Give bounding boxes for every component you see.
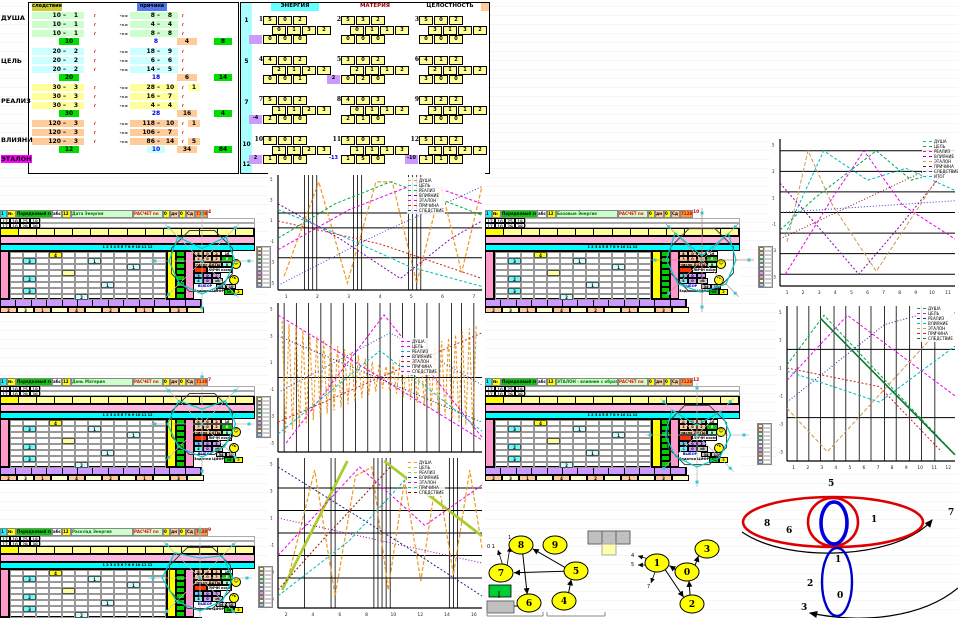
purple-band-cell[interactable] <box>609 300 624 306</box>
grid-cell[interactable] <box>534 294 547 300</box>
cause-effect-table[interactable]: следствиепричина10 –1г-==8 –8г10 –1г-==4… <box>28 2 239 174</box>
yellow-band-cell[interactable] <box>55 229 73 235</box>
yellow-band-cell[interactable] <box>128 547 146 553</box>
matrix-cell[interactable]: 2 <box>473 146 487 155</box>
matrix-cell[interactable]: 0 <box>434 35 448 44</box>
matrix-cell[interactable]: 2 <box>449 56 463 65</box>
grid-cell[interactable] <box>547 462 560 468</box>
purple-band-cell[interactable] <box>63 468 78 474</box>
matrix-cell[interactable]: 1 <box>287 66 301 75</box>
matrix-cell[interactable]: 2 <box>473 106 487 115</box>
matrix-cell[interactable]: 2 <box>302 146 316 155</box>
cause-row[interactable]: 30 –3г-==28 –10г1 <box>29 83 238 92</box>
yellow-band-cell[interactable] <box>91 547 109 553</box>
grid-cell-filled[interactable]: 1 <box>127 582 140 588</box>
grid-cell-filled[interactable]: 3 <box>508 258 521 264</box>
purple-band-cell[interactable] <box>1 300 16 306</box>
bottom-cell[interactable] <box>536 475 553 481</box>
grid-cell[interactable] <box>88 294 101 300</box>
bottom-cell[interactable]: 4 <box>553 475 570 481</box>
cause-subtotal-row[interactable]: 12103484 <box>29 146 238 155</box>
purple-band-cell[interactable] <box>63 300 78 306</box>
purple-band-cell[interactable] <box>486 300 501 306</box>
grid-cell[interactable] <box>625 462 638 468</box>
purple-band-cell[interactable] <box>109 468 124 474</box>
matrix-cell[interactable]: 0 <box>278 96 292 105</box>
yellow-band-cell[interactable] <box>73 397 91 403</box>
yellow-band-cell[interactable] <box>594 397 612 403</box>
matrix-cell[interactable]: 0 <box>278 115 292 124</box>
num-cell[interactable]: 17 <box>485 223 495 228</box>
bottom-cell[interactable]: 2 <box>102 307 119 313</box>
matrix-cell[interactable]: 0 <box>278 35 292 44</box>
grid-cell-filled[interactable]: 1 <box>88 576 101 582</box>
grid-cell-filled[interactable]: 1 <box>573 426 586 432</box>
block-grid[interactable]: 43112132 <box>494 251 652 299</box>
matrix-cell[interactable]: 0 <box>449 35 463 44</box>
yellow-band-cell[interactable] <box>91 229 109 235</box>
matrix-cell[interactable]: 4 <box>419 56 433 65</box>
yellow-band-cell[interactable] <box>540 397 558 403</box>
yellow-band-cell[interactable] <box>19 229 37 235</box>
cause-row[interactable]: 120 –3г-==106 –7г <box>29 128 238 137</box>
matrix-cell[interactable]: 1 <box>419 155 433 164</box>
purple-band-cell[interactable] <box>532 300 547 306</box>
cause-subtotal-row[interactable]: 10848 <box>29 38 238 47</box>
grid-cell[interactable] <box>36 462 49 468</box>
grid-cell-filled[interactable]: 2 <box>75 294 88 300</box>
matrix-cell[interactable]: 3 <box>419 75 433 84</box>
grid-cell[interactable] <box>49 294 62 300</box>
matrix-cell[interactable]: 5 <box>356 155 370 164</box>
cause-row[interactable]: 120 –3г-==118 –10г1 <box>29 119 238 128</box>
purple-band-cell[interactable] <box>625 468 640 474</box>
yellow-band-cell[interactable] <box>486 397 504 403</box>
yellow-band-cell[interactable] <box>91 397 109 403</box>
grid-cell-filled[interactable]: 2 <box>23 594 36 600</box>
matrix-cell[interactable]: 1 <box>272 146 286 155</box>
matrix-cell[interactable]: 3 <box>395 146 409 155</box>
grid-cell-filled[interactable]: 3 <box>23 576 36 582</box>
num-cell[interactable]: 38 <box>30 223 40 228</box>
matrix-cell[interactable]: 0 <box>278 75 292 84</box>
matrix-cell[interactable]: 1 <box>365 66 379 75</box>
grid-cell[interactable] <box>101 294 114 300</box>
matrix-cell[interactable]: 0 <box>449 75 463 84</box>
bottom-cell[interactable]: 2 <box>102 475 119 481</box>
grid-cell[interactable] <box>599 294 612 300</box>
grid-cell[interactable] <box>10 294 23 300</box>
grid-cell[interactable] <box>101 612 114 618</box>
grid-cell-filled[interactable] <box>547 270 560 276</box>
matrix-cell[interactable]: 1 <box>443 146 457 155</box>
bottom-cell[interactable]: 4 <box>68 475 85 481</box>
matrix-cell[interactable]: 1 <box>434 136 448 145</box>
yellow-band-cell[interactable] <box>576 229 594 235</box>
matrix-cell[interactable]: 0 <box>371 155 385 164</box>
grid-cell[interactable] <box>88 462 101 468</box>
matrix-cell[interactable]: 0 <box>278 155 292 164</box>
block-grid[interactable]: 43112132 <box>9 251 167 299</box>
matrix-cell[interactable]: 2 <box>473 26 487 35</box>
block-grid[interactable]: 43112132 <box>494 419 652 467</box>
matrix-pre-cell[interactable]: -13 <box>327 155 340 164</box>
bottom-cell[interactable] <box>119 307 136 313</box>
purple-band-cell[interactable] <box>532 468 547 474</box>
matrix-cell[interactable]: 0 <box>350 106 364 115</box>
matrix-cell[interactable]: 3 <box>317 146 331 155</box>
matrix-cell[interactable]: 0 <box>356 56 370 65</box>
matrix-pre-cell[interactable]: -10 <box>405 155 418 164</box>
purple-band-cell[interactable] <box>78 300 93 306</box>
matrix-cell[interactable]: 1 <box>458 66 472 75</box>
matrix-pre-cell[interactable]: 2 <box>327 75 340 84</box>
cause-row[interactable]: 20 –2г-==6 –6г <box>29 56 238 65</box>
matrix-cell[interactable]: 2 <box>371 16 385 25</box>
grid-cell[interactable] <box>114 462 127 468</box>
yellow-band-cell[interactable] <box>37 397 55 403</box>
purple-band-cell[interactable] <box>501 468 516 474</box>
bottom-cell[interactable]: 1 <box>34 475 51 481</box>
matrix-cell[interactable]: 1 <box>341 155 355 164</box>
yellow-band-cell[interactable] <box>613 397 631 403</box>
purple-band-cell[interactable] <box>16 468 31 474</box>
purple-band-cell[interactable] <box>124 300 139 306</box>
matrix-cell[interactable]: 0 <box>434 115 448 124</box>
yellow-band-cell[interactable] <box>73 547 91 553</box>
matrix-cell[interactable]: 2 <box>371 56 385 65</box>
matrix-cell[interactable]: 0 <box>278 56 292 65</box>
grid-cell[interactable] <box>23 462 36 468</box>
bottom-cell[interactable]: 3 <box>17 475 34 481</box>
num-cell[interactable]: 38 <box>515 223 525 228</box>
purple-band-cell[interactable] <box>563 468 578 474</box>
purple-band-cell[interactable] <box>47 468 62 474</box>
grid-cell[interactable] <box>521 462 534 468</box>
matrix-cell[interactable]: 1 <box>356 115 370 124</box>
cause-row[interactable]: 120 –3г-==86 –14г5 <box>29 137 238 146</box>
matrix-cell[interactable]: 5 <box>341 136 355 145</box>
grid-cell[interactable] <box>62 294 75 300</box>
bottom-cell[interactable]: 2 <box>587 307 604 313</box>
matrix-cell[interactable]: 1 <box>287 26 301 35</box>
matrix-cell[interactable]: 2 <box>350 66 364 75</box>
num-cell[interactable]: 38 <box>515 391 525 396</box>
purple-band-cell[interactable] <box>517 468 532 474</box>
matrix-cell[interactable]: 1 <box>443 106 457 115</box>
purple-band-cell[interactable] <box>578 468 593 474</box>
grid-cell[interactable] <box>508 294 521 300</box>
purple-band-cell[interactable] <box>578 300 593 306</box>
grid-cell-filled[interactable]: 1 <box>612 432 625 438</box>
grid-cell-filled[interactable] <box>547 438 560 444</box>
grid-cell[interactable] <box>612 294 625 300</box>
matrix-cell[interactable]: 1 <box>443 66 457 75</box>
num-cell[interactable]: 10 <box>10 391 20 396</box>
grid-cell-filled[interactable] <box>62 588 75 594</box>
matrix-cell[interactable]: 3 <box>458 26 472 35</box>
yellow-band-cell[interactable] <box>1 229 19 235</box>
matrix-cell[interactable]: 1 <box>365 26 379 35</box>
num-cell[interactable]: 29 <box>20 391 30 396</box>
grid-cell-filled[interactable]: 1 <box>586 450 599 456</box>
bottom-cell[interactable]: 1 <box>519 307 536 313</box>
purple-band-cell[interactable] <box>501 300 516 306</box>
bottom-cell[interactable]: 2 <box>485 307 502 313</box>
grid-cell-filled[interactable]: 1 <box>573 258 586 264</box>
matrix-cell[interactable]: 2 <box>317 26 331 35</box>
bottom-cell[interactable] <box>570 475 587 481</box>
matrix-cell[interactable]: 1 <box>434 155 448 164</box>
matrix-cell[interactable]: 2 <box>356 75 370 84</box>
matrix-cell[interactable]: 0 <box>449 115 463 124</box>
grid-cell-filled[interactable]: 2 <box>75 462 88 468</box>
bottom-cell[interactable]: 3 <box>502 475 519 481</box>
energy-matter-matrix-table[interactable]: 1571012ЭНЕРГИЯМАТЕРИЯЦЕЛОСТНОСТЬ15020132… <box>240 2 490 174</box>
matrix-cell[interactable]: 3 <box>356 16 370 25</box>
matrix-cell[interactable]: 0 <box>293 155 307 164</box>
matrix-cell[interactable]: 0 <box>356 136 370 145</box>
grid-cell-filled[interactable]: 2 <box>23 276 36 282</box>
grid-cell-filled[interactable]: 1 <box>101 450 114 456</box>
matrix-cell[interactable]: 1 <box>287 106 301 115</box>
matrix-cell[interactable]: 2 <box>428 66 442 75</box>
matrix-cell[interactable]: 0 <box>419 35 433 44</box>
yellow-band-cell[interactable] <box>504 229 522 235</box>
grid-cell[interactable] <box>127 294 140 300</box>
grid-cell-filled[interactable]: 3 <box>23 288 36 294</box>
bottom-cell[interactable]: 3 <box>17 307 34 313</box>
bottom-cell[interactable]: 3 <box>502 307 519 313</box>
yellow-band-cell[interactable] <box>631 229 649 235</box>
matrix-cell[interactable]: 1 <box>287 146 301 155</box>
matrix-cell[interactable]: 5 <box>263 16 277 25</box>
matrix-cell[interactable]: 1 <box>365 146 379 155</box>
bottom-cell[interactable] <box>119 475 136 481</box>
bottom-cell[interactable] <box>51 307 68 313</box>
purple-band-cell[interactable] <box>93 300 108 306</box>
purple-band-cell[interactable] <box>594 300 609 306</box>
num-cell[interactable]: 17 <box>485 391 495 396</box>
num-cell[interactable]: 17 <box>0 391 10 396</box>
grid-cell[interactable] <box>10 612 23 618</box>
num-cell[interactable]: 38 <box>30 541 40 546</box>
grid-cell-filled[interactable]: 2 <box>560 294 573 300</box>
yellow-band-cell[interactable] <box>128 229 146 235</box>
grid-cell[interactable] <box>36 612 49 618</box>
matrix-cell[interactable]: 1 <box>272 106 286 115</box>
bottom-cell[interactable]: 1 <box>621 475 638 481</box>
grid-cell-filled[interactable]: 3 <box>508 456 521 462</box>
purple-band-cell[interactable] <box>16 300 31 306</box>
matrix-cell[interactable]: 3 <box>371 136 385 145</box>
grid-cell-filled[interactable]: 2 <box>23 444 36 450</box>
matrix-cell[interactable]: 3 <box>395 26 409 35</box>
bottom-cell[interactable]: 4 <box>553 307 570 313</box>
num-cell[interactable]: 17 <box>0 223 10 228</box>
grid-cell[interactable] <box>495 462 508 468</box>
matrix-cell[interactable]: 2 <box>293 96 307 105</box>
matrix-cell[interactable]: 2 <box>449 136 463 145</box>
matrix-cell[interactable]: 1 <box>428 146 442 155</box>
matrix-cell[interactable]: 3 <box>419 96 433 105</box>
matrix-cell[interactable]: 2 <box>263 115 277 124</box>
grid-cell[interactable] <box>127 612 140 618</box>
purple-band-cell[interactable] <box>594 468 609 474</box>
grid-cell-filled[interactable]: 2 <box>75 612 88 618</box>
grid-cell[interactable] <box>625 294 638 300</box>
matrix-cell[interactable]: 3 <box>341 56 355 65</box>
grid-cell-filled[interactable]: 3 <box>508 288 521 294</box>
block-grid[interactable]: 43112132 <box>9 419 167 467</box>
grid-cell[interactable] <box>36 294 49 300</box>
purple-band-cell[interactable] <box>517 300 532 306</box>
grid-cell[interactable] <box>88 612 101 618</box>
num-cell[interactable]: 38 <box>30 391 40 396</box>
bottom-cell[interactable] <box>604 307 621 313</box>
matrix-cell[interactable]: 0 <box>293 115 307 124</box>
matrix-cell[interactable]: 2 <box>272 66 286 75</box>
yellow-band-cell[interactable] <box>55 397 73 403</box>
bottom-cell[interactable]: 1 <box>621 307 638 313</box>
bottom-cell[interactable] <box>85 475 102 481</box>
grid-cell-filled[interactable]: 1 <box>127 264 140 270</box>
bottom-cell[interactable] <box>85 307 102 313</box>
matrix-cell[interactable]: 1 <box>380 106 394 115</box>
matrix-cell[interactable]: 3 <box>371 96 385 105</box>
yellow-band-cell[interactable] <box>558 397 576 403</box>
matrix-cell[interactable]: 2 <box>293 56 307 65</box>
matrix-cell[interactable]: 4 <box>263 56 277 65</box>
matrix-cell[interactable]: 5 <box>341 16 355 25</box>
matrix-cell[interactable]: 5 <box>419 16 433 25</box>
grid-cell[interactable] <box>10 462 23 468</box>
grid-cell-filled[interactable]: 1 <box>88 426 101 432</box>
num-cell[interactable]: 29 <box>20 541 30 546</box>
grid-cell-filled[interactable]: 2 <box>508 444 521 450</box>
grid-cell-filled[interactable]: 4 <box>534 420 547 426</box>
cause-row[interactable]: 10 –1г-==4 –4г <box>29 20 238 29</box>
grid-cell[interactable] <box>49 462 62 468</box>
cause-row[interactable]: 10 –1г-==8 –8г <box>29 11 238 20</box>
num-cell[interactable]: 29 <box>505 223 515 228</box>
grid-cell-filled[interactable]: 1 <box>127 432 140 438</box>
matrix-cell[interactable]: 2 <box>434 96 448 105</box>
matrix-cell[interactable]: 2 <box>302 106 316 115</box>
grid-cell-filled[interactable]: 4 <box>534 252 547 258</box>
matrix-cell[interactable]: 0 <box>272 26 286 35</box>
purple-band-cell[interactable] <box>548 468 563 474</box>
purple-band-cell[interactable] <box>486 468 501 474</box>
matrix-cell[interactable]: 2 <box>302 66 316 75</box>
num-cell[interactable]: 10 <box>10 541 20 546</box>
matrix-cell[interactable]: 3 <box>317 106 331 115</box>
grid-cell-filled[interactable] <box>62 270 75 276</box>
matrix-cell[interactable]: 2 <box>395 106 409 115</box>
purple-band-cell[interactable] <box>32 300 47 306</box>
matrix-cell[interactable]: 2 <box>473 66 487 75</box>
yellow-band-cell[interactable] <box>55 547 73 553</box>
matrix-cell[interactable]: 0 <box>278 16 292 25</box>
grid-cell-filled[interactable]: 1 <box>101 600 114 606</box>
matrix-cell[interactable]: 1 <box>350 146 364 155</box>
grid-cell[interactable] <box>521 294 534 300</box>
yellow-band-cell[interactable] <box>19 547 37 553</box>
matrix-cell[interactable]: 0 <box>356 96 370 105</box>
matrix-cell[interactable]: 1 <box>293 75 307 84</box>
bottom-cell[interactable]: 2 <box>0 307 17 313</box>
bottom-cell[interactable] <box>536 307 553 313</box>
grid-cell-filled[interactable]: 1 <box>88 258 101 264</box>
grid-cell[interactable] <box>573 294 586 300</box>
matrix-pre-cell[interactable]: -4 <box>249 115 262 124</box>
matrix-cell[interactable]: 2 <box>341 115 355 124</box>
purple-band-cell[interactable] <box>47 300 62 306</box>
bottom-cell[interactable]: 2 <box>0 475 17 481</box>
yellow-band-cell[interactable] <box>109 547 127 553</box>
yellow-band-cell[interactable] <box>109 229 127 235</box>
matrix-cell[interactable]: 2 <box>458 146 472 155</box>
matrix-cell[interactable]: 2 <box>293 16 307 25</box>
block-grid[interactable]: 43112132 <box>9 569 167 617</box>
matrix-cell[interactable]: 8 <box>263 136 277 145</box>
matrix-pre-cell[interactable]: 2 <box>249 155 262 164</box>
matrix-cell[interactable]: 1 <box>263 155 277 164</box>
matrix-pre-cell[interactable] <box>249 35 262 44</box>
bottom-cell[interactable]: 2 <box>485 475 502 481</box>
bottom-cell[interactable]: 1 <box>34 307 51 313</box>
matrix-cell[interactable]: 0 <box>278 136 292 145</box>
grid-cell-filled[interactable]: 4 <box>49 570 62 576</box>
num-cell[interactable]: 10 <box>495 391 505 396</box>
matrix-cell[interactable]: 0 <box>341 75 355 84</box>
grid-cell-filled[interactable]: 3 <box>23 426 36 432</box>
matrix-cell[interactable]: 0 <box>356 35 370 44</box>
matrix-cell[interactable]: 1 <box>380 26 394 35</box>
matrix-cell[interactable]: 3 <box>428 26 442 35</box>
yellow-band-cell[interactable] <box>1 547 19 553</box>
purple-band-cell[interactable] <box>625 300 640 306</box>
cause-row[interactable]: 20 –2г-==18 –9г <box>29 47 238 56</box>
num-cell[interactable]: 29 <box>20 223 30 228</box>
matrix-cell[interactable]: 2 <box>449 96 463 105</box>
grid-cell-filled[interactable]: 3 <box>508 426 521 432</box>
grid-cell[interactable] <box>508 462 521 468</box>
grid-cell[interactable] <box>586 294 599 300</box>
num-cell[interactable]: 17 <box>0 541 10 546</box>
yellow-band-cell[interactable] <box>19 397 37 403</box>
grid-cell[interactable] <box>599 462 612 468</box>
purple-band-cell[interactable] <box>124 468 139 474</box>
yellow-band-cell[interactable] <box>128 397 146 403</box>
yellow-band-cell[interactable] <box>558 229 576 235</box>
purple-band-cell[interactable] <box>548 300 563 306</box>
yellow-band-cell[interactable] <box>37 547 55 553</box>
grid-cell-filled[interactable]: 3 <box>23 456 36 462</box>
cause-subtotal-row[interactable]: 3028164 <box>29 110 238 119</box>
cause-row[interactable]: 10 –1г-==8 –8г <box>29 29 238 38</box>
grid-cell-filled[interactable] <box>62 438 75 444</box>
purple-band-cell[interactable] <box>609 468 624 474</box>
grid-cell[interactable] <box>114 612 127 618</box>
matrix-cell[interactable]: 3 <box>428 106 442 115</box>
grid-cell[interactable] <box>534 462 547 468</box>
yellow-band-cell[interactable] <box>73 229 91 235</box>
bottom-cell[interactable] <box>51 475 68 481</box>
grid-cell[interactable] <box>62 462 75 468</box>
cause-row[interactable]: 20 –2г-==14 –5г <box>29 65 238 74</box>
matrix-cell[interactable]: 0 <box>434 75 448 84</box>
